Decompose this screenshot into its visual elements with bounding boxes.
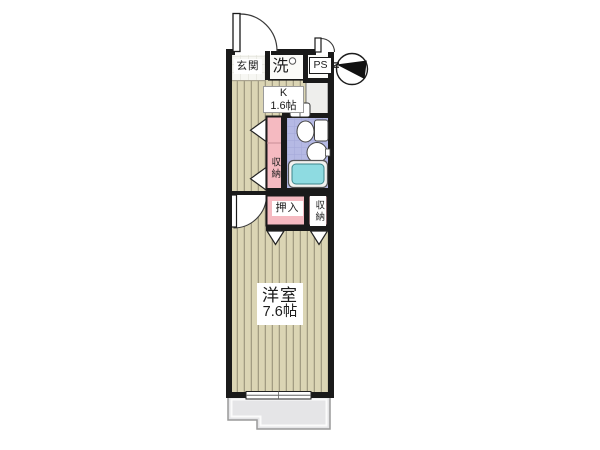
ps-door-panel <box>315 38 321 52</box>
wall-door-lintel <box>226 191 266 195</box>
entrance-label: 玄関 <box>234 59 262 74</box>
wall-left <box>226 49 232 398</box>
main-room-label: 洋室 7.6帖 <box>257 283 303 325</box>
compass-north-label: N <box>331 59 343 71</box>
pipe-space-label: PS <box>309 57 332 74</box>
main-room-name: 洋室 <box>262 287 298 306</box>
wall-ps-bottom <box>303 78 334 83</box>
balcony <box>228 396 330 429</box>
bath-sink <box>307 143 327 163</box>
wall-laundry-ps <box>303 49 308 78</box>
closet-label: 押入 <box>272 201 303 216</box>
kitchen-name: K <box>280 87 287 99</box>
bath-sink-tap <box>326 149 331 156</box>
main-room-size: 7.6帖 <box>263 305 298 321</box>
kitchen-label: K 1.6帖 <box>263 86 304 113</box>
wall-bottom-right <box>311 392 334 398</box>
hall-storage-label: 収納 <box>266 145 282 191</box>
bathtub <box>292 164 324 184</box>
toilet-tank <box>315 120 329 141</box>
toilet-bowl <box>297 121 314 142</box>
kitchen-size: 1.6帖 <box>270 100 296 112</box>
room-storage-label: 収納 <box>310 196 326 226</box>
wall-right <box>328 49 334 398</box>
wall-laundry-bottom-line <box>268 79 305 81</box>
wall-bottom-left <box>226 392 246 398</box>
laundry-label: 洗 <box>269 55 292 79</box>
floor-plan-screenshot: 玄関 洗 PS K 1.6帖 収納 押入 収納 洋室 7.6帖 N <box>0 0 600 450</box>
floor-plan-graphic <box>0 0 600 450</box>
entrance-step-line <box>232 80 265 81</box>
entrance-door-panel <box>233 14 240 52</box>
